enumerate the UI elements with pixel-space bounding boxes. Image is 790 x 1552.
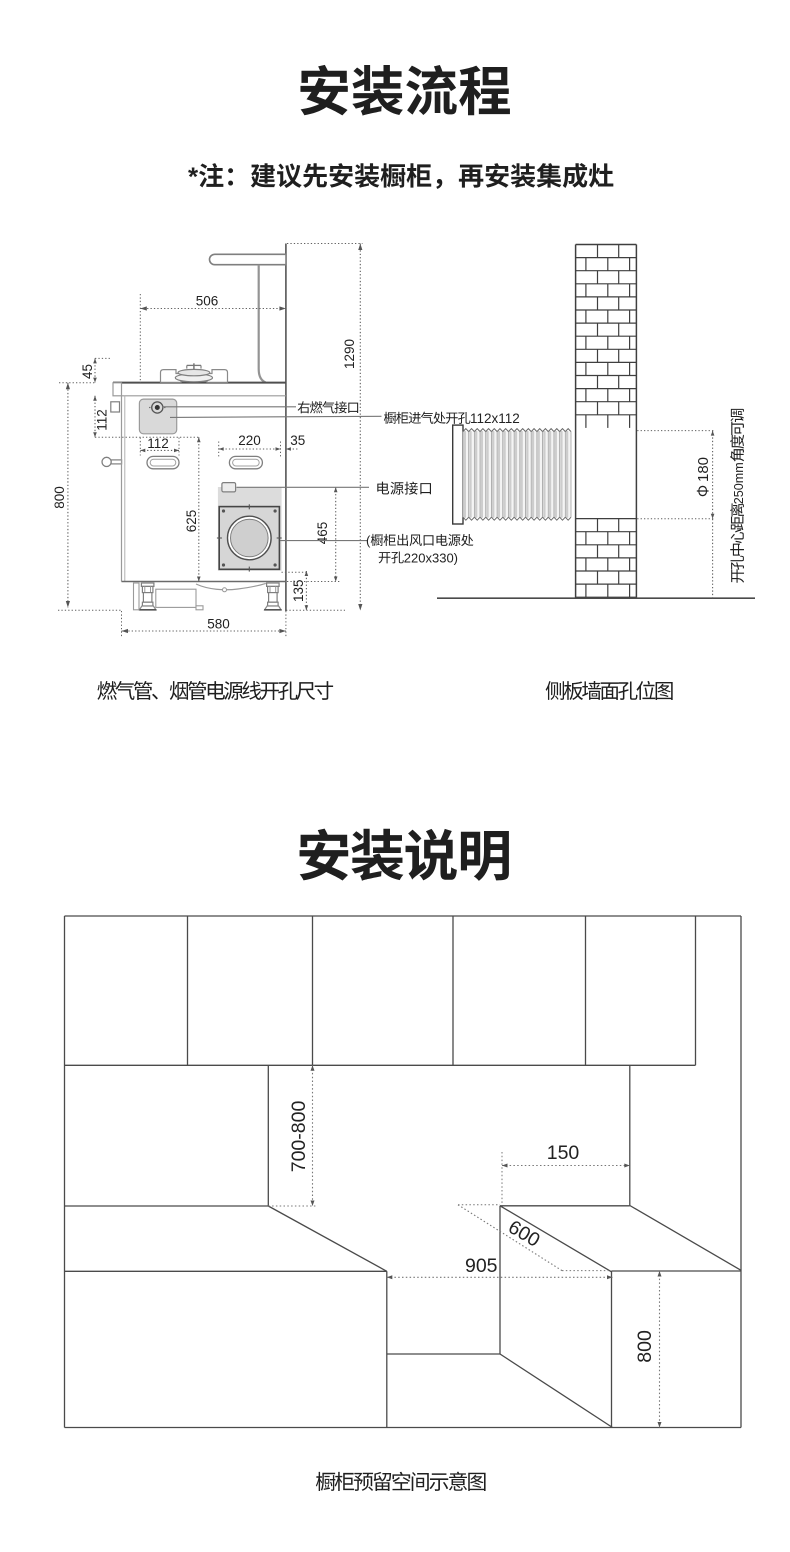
svg-text:*: * (188, 161, 199, 191)
svg-text:250mm: 250mm (732, 462, 746, 504)
svg-text:220: 220 (238, 433, 261, 448)
svg-text:1290: 1290 (342, 339, 357, 369)
svg-text:625: 625 (184, 510, 199, 533)
svg-text:800: 800 (52, 486, 67, 509)
svg-text:150: 150 (547, 1142, 580, 1164)
svg-text:905: 905 (465, 1255, 498, 1277)
svg-text:220x330): 220x330) (404, 550, 458, 565)
svg-text:580: 580 (207, 617, 230, 632)
svg-text:35: 35 (290, 433, 305, 448)
svg-text:112: 112 (147, 436, 169, 451)
svg-text:45: 45 (80, 364, 95, 379)
svg-text:800: 800 (634, 1330, 656, 1363)
svg-text:112: 112 (94, 409, 109, 431)
svg-text:700-800: 700-800 (288, 1101, 310, 1173)
svg-text:135: 135 (291, 580, 306, 603)
svg-text:506: 506 (196, 293, 219, 308)
svg-text:180: 180 (695, 457, 712, 482)
svg-text:112x112: 112x112 (470, 411, 520, 426)
svg-text:(: ( (366, 533, 371, 548)
